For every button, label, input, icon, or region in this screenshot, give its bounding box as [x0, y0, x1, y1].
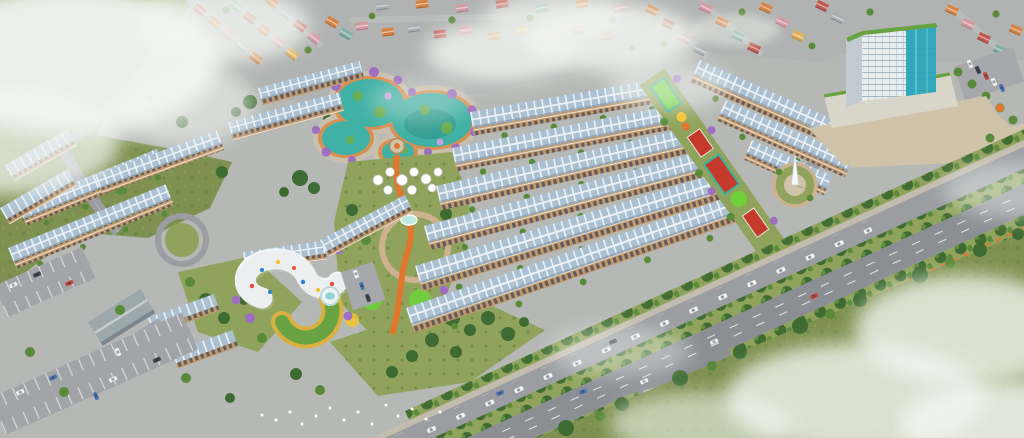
- playground-structure: [996, 104, 1004, 112]
- tower-glass-band: [906, 24, 936, 96]
- render-canvas: [0, 0, 1024, 438]
- aerial-masterplan-render: [0, 0, 1024, 438]
- tower-side-face: [846, 32, 862, 108]
